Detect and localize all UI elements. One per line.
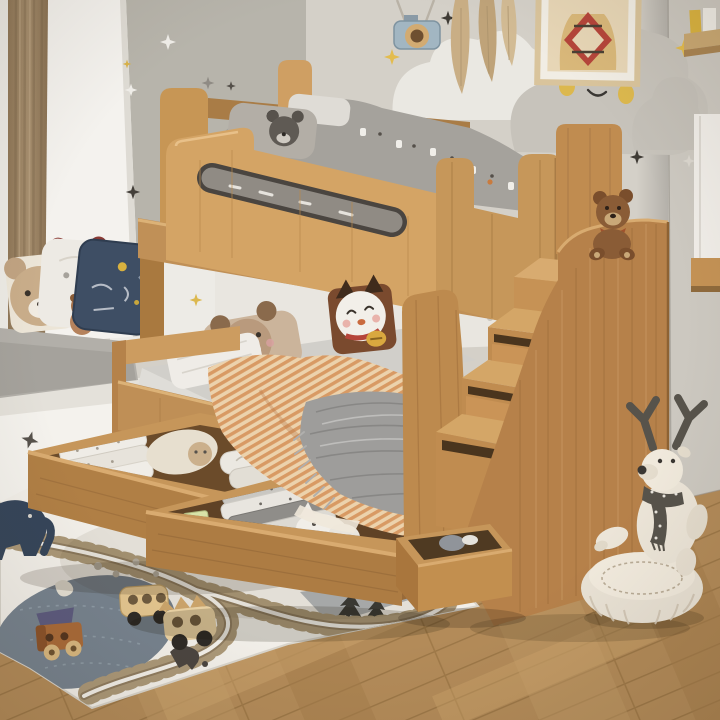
scene: A (0, 0, 720, 720)
photo-kids-room: A (0, 0, 720, 720)
vignette-overlay (0, 0, 720, 720)
